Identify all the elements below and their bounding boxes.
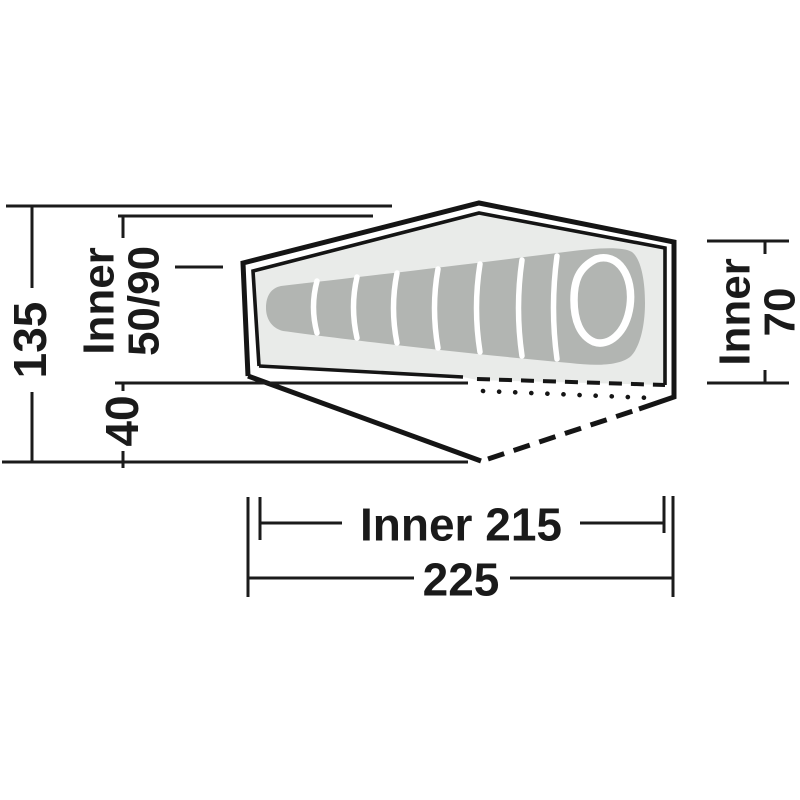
label-total-length: 225 bbox=[423, 553, 500, 605]
label-porch-depth: 40 bbox=[96, 395, 148, 446]
label-inner-length: Inner 215 bbox=[360, 498, 562, 550]
label-total-width: 135 bbox=[4, 302, 56, 379]
inner-door-dotted-line bbox=[483, 391, 651, 398]
porch-door-dashed-edge bbox=[488, 409, 639, 459]
label-inner-height-value: 70 bbox=[755, 288, 800, 337]
porch-left-edge bbox=[248, 376, 481, 461]
tent-dimension-diagram: 135 Inner 50/90 40 Inner 70 Inner 215 22… bbox=[0, 0, 800, 800]
label-inner-width-value: 50/90 bbox=[119, 246, 168, 356]
label-inner-height-word: Inner bbox=[710, 258, 759, 366]
diagram-canvas: 135 Inner 50/90 40 Inner 70 Inner 215 22… bbox=[0, 0, 800, 800]
label-inner-width-word: Inner bbox=[74, 247, 123, 355]
